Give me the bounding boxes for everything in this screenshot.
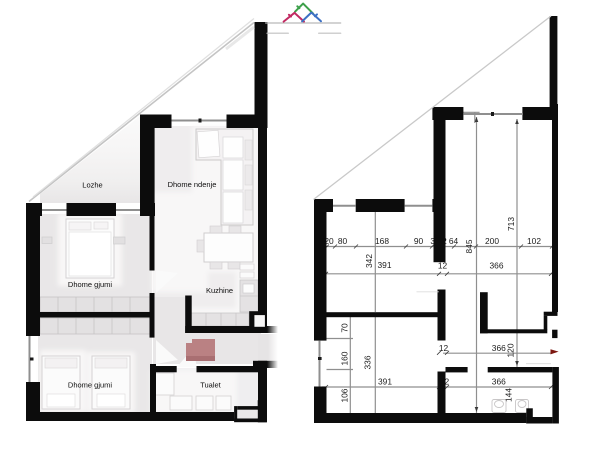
svg-text:Kuzhine: Kuzhine bbox=[206, 286, 233, 295]
svg-text:106: 106 bbox=[339, 388, 349, 402]
svg-text:102: 102 bbox=[527, 236, 541, 246]
svg-text:Dhome ndenje: Dhome ndenje bbox=[168, 180, 217, 189]
svg-text:12: 12 bbox=[439, 343, 449, 353]
svg-text:Tualet: Tualet bbox=[200, 381, 221, 390]
svg-text:391: 391 bbox=[378, 260, 392, 270]
svg-text:342: 342 bbox=[364, 254, 374, 268]
svg-text:Dhome gjumi: Dhome gjumi bbox=[68, 381, 113, 390]
svg-text:713: 713 bbox=[506, 217, 516, 231]
svg-text:168: 168 bbox=[375, 236, 389, 246]
svg-text:160: 160 bbox=[339, 351, 349, 365]
svg-text:200: 200 bbox=[485, 236, 499, 246]
svg-text:391: 391 bbox=[378, 377, 392, 387]
svg-text:845: 845 bbox=[464, 239, 474, 253]
svg-text:80: 80 bbox=[338, 236, 348, 246]
svg-text:90: 90 bbox=[414, 236, 424, 246]
svg-text:64: 64 bbox=[449, 236, 459, 246]
svg-text:Lozhe: Lozhe bbox=[82, 181, 102, 190]
svg-text:366: 366 bbox=[492, 377, 506, 387]
svg-text:70: 70 bbox=[339, 323, 349, 333]
svg-text:Dhome gjumi: Dhome gjumi bbox=[68, 280, 113, 289]
svg-text:366: 366 bbox=[490, 261, 504, 271]
svg-text:366: 366 bbox=[492, 343, 506, 353]
svg-text:120: 120 bbox=[506, 343, 516, 357]
svg-text:336: 336 bbox=[363, 355, 373, 369]
